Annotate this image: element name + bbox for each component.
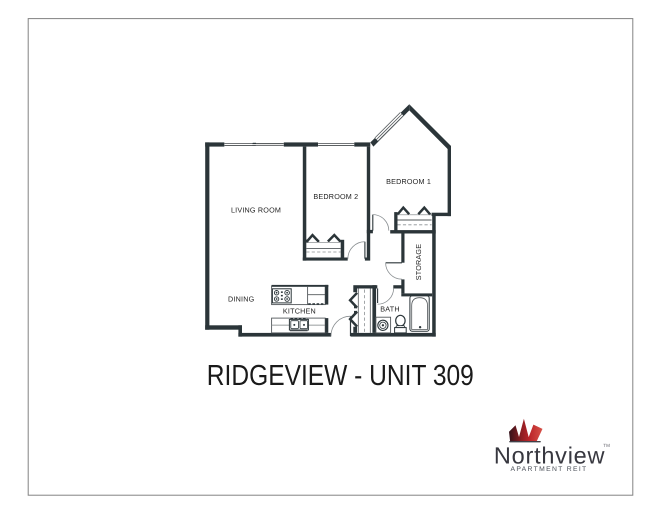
svg-text:LIVING ROOM: LIVING ROOM <box>231 205 281 214</box>
svg-text:STORAGE: STORAGE <box>414 244 423 280</box>
svg-text:KITCHEN: KITCHEN <box>283 307 316 316</box>
svg-text:BEDROOM 2: BEDROOM 2 <box>313 192 358 201</box>
svg-text:Northview: Northview <box>494 443 606 469</box>
svg-text:RIDGEVIEW - UNIT 309: RIDGEVIEW - UNIT 309 <box>207 360 474 392</box>
svg-text:BEDROOM 1: BEDROOM 1 <box>386 177 431 186</box>
svg-text:APARTMENT REIT: APARTMENT REIT <box>510 466 587 473</box>
svg-text:DINING: DINING <box>228 295 255 304</box>
svg-text:TM: TM <box>603 443 610 448</box>
svg-text:BATH: BATH <box>380 304 399 313</box>
